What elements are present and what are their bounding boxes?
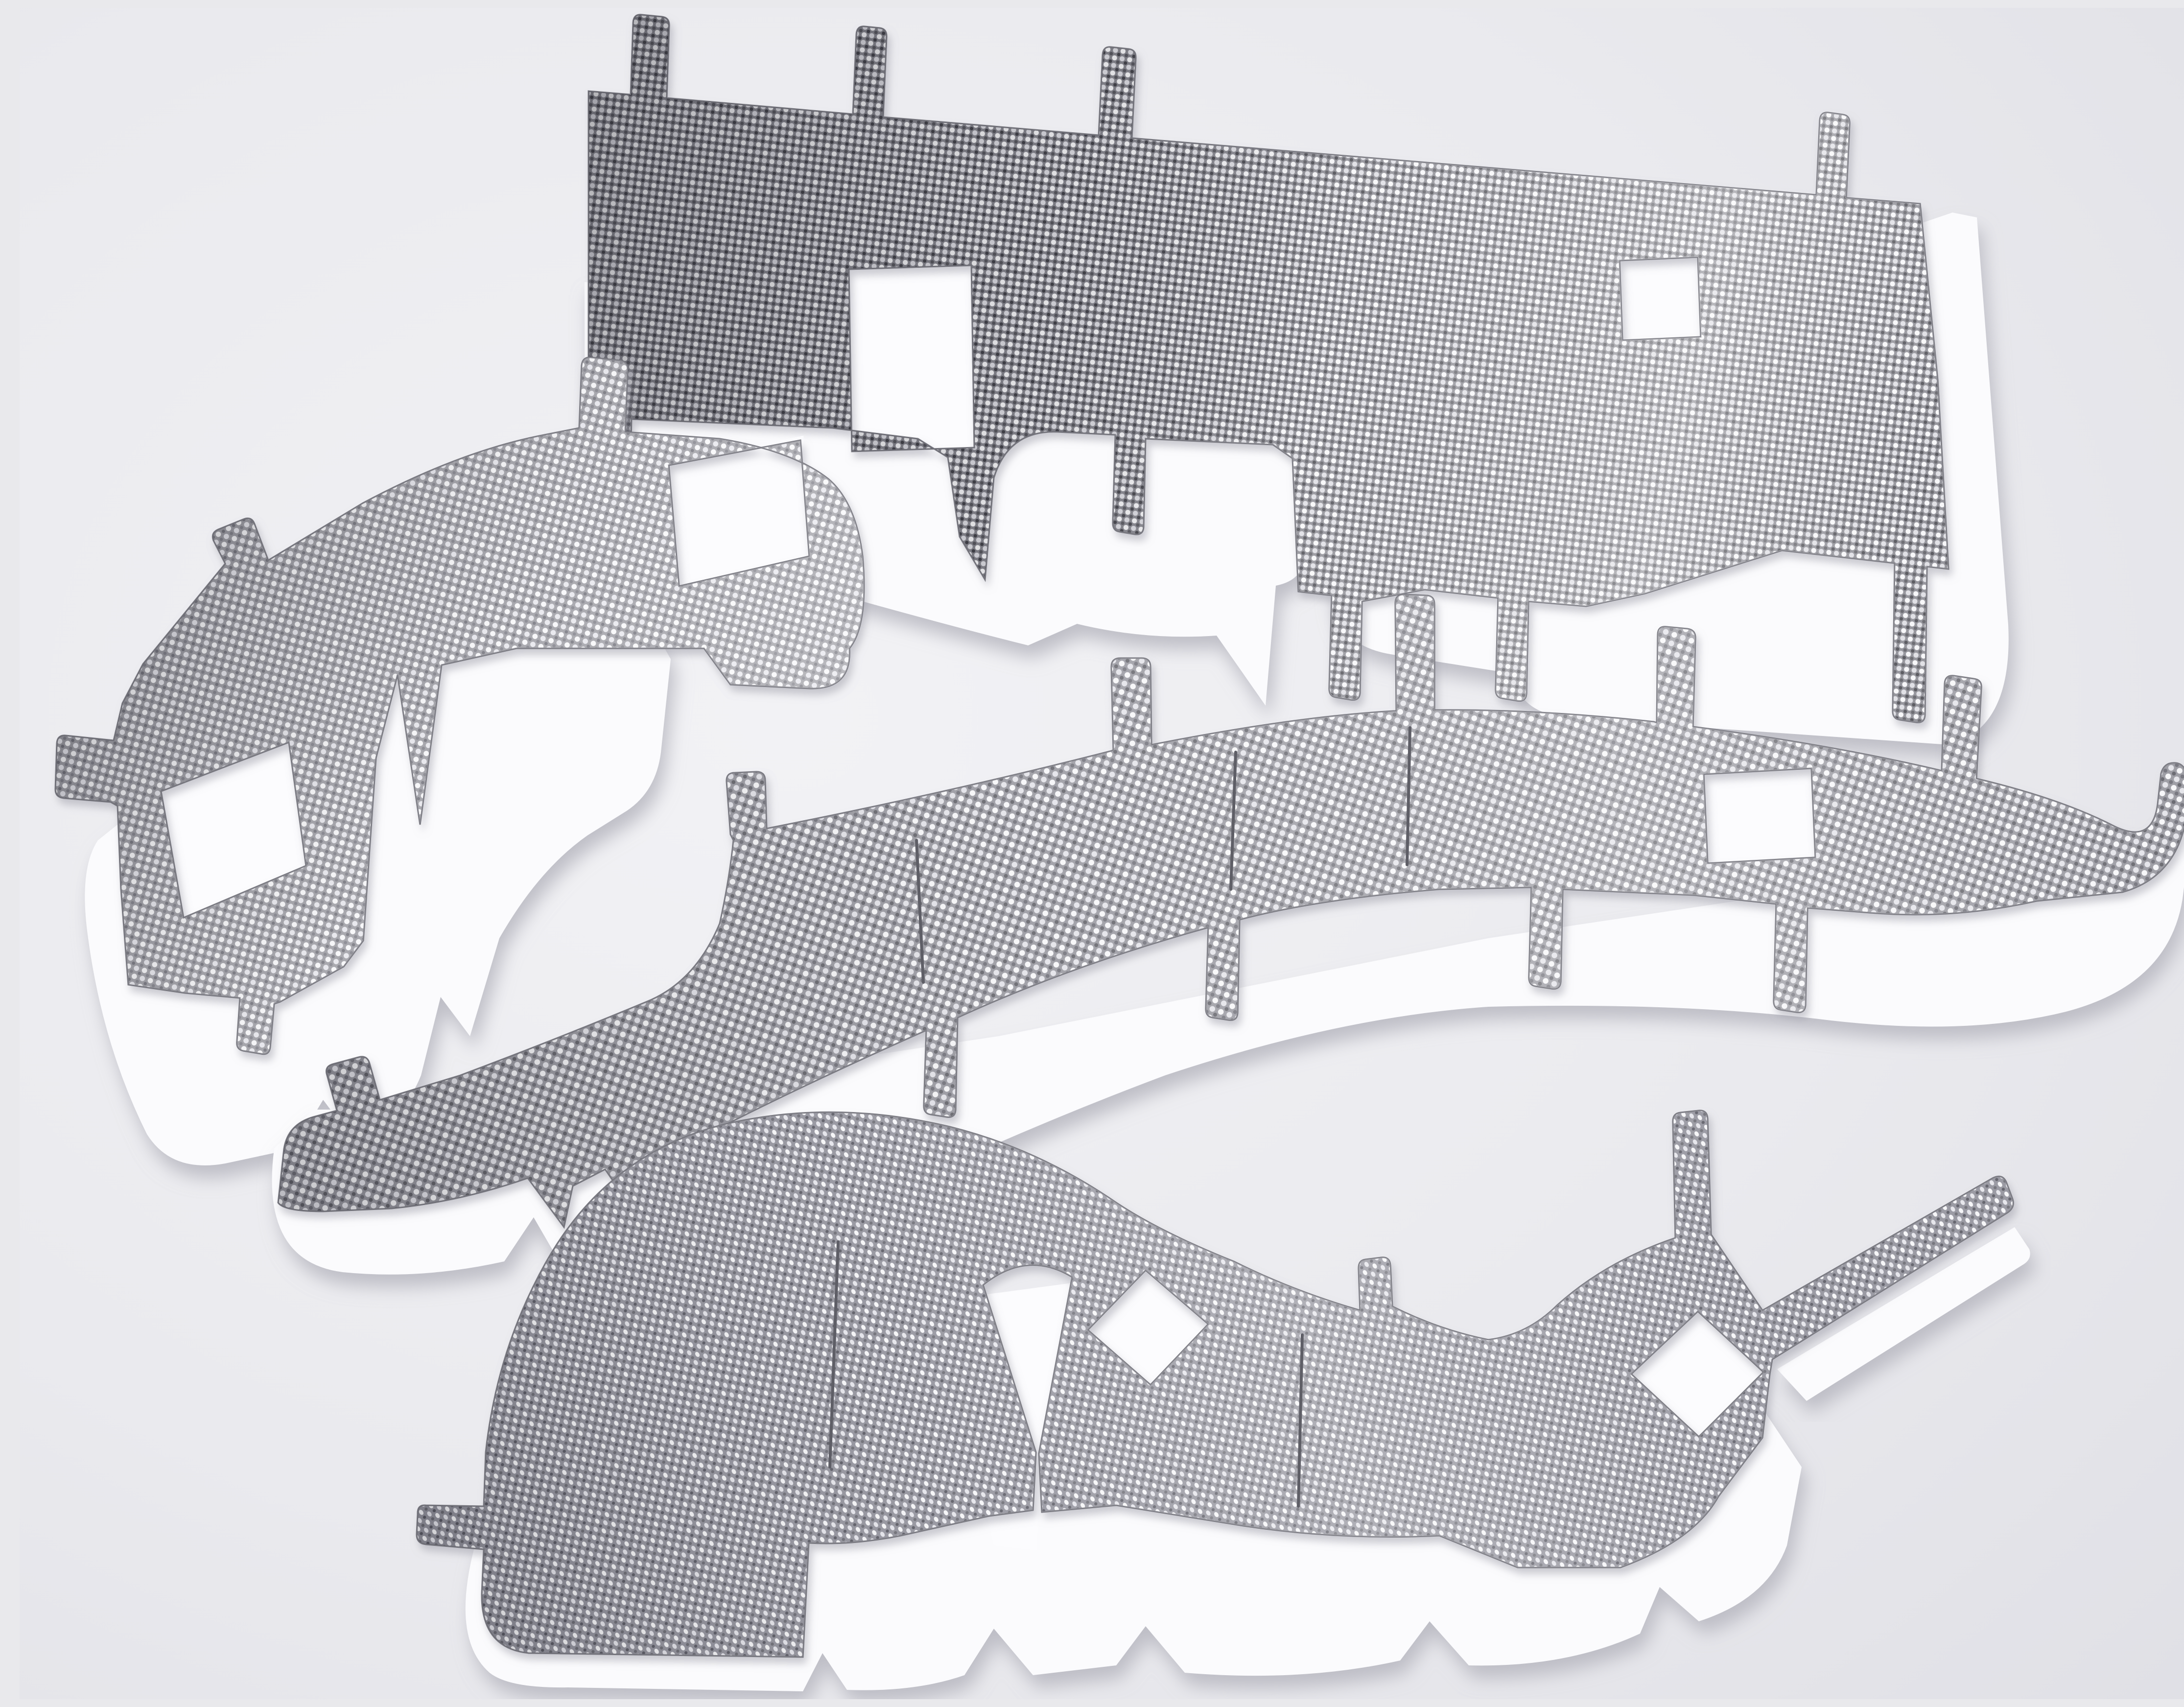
top-panel-cutout-backing xyxy=(846,262,977,454)
heat-shield-parts-scene xyxy=(20,8,2184,1699)
top-panel-cutout-backing xyxy=(1617,254,1704,343)
heat-shield-parts-photo xyxy=(20,8,2184,1699)
center-band-cutout-backing xyxy=(1701,765,1818,867)
